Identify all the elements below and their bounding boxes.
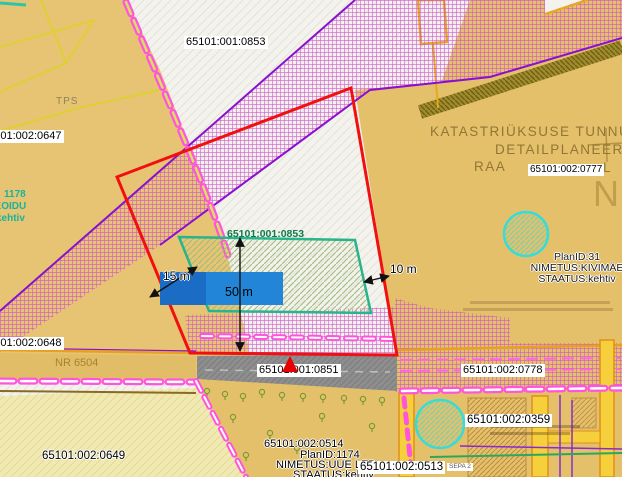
plan-left-name-fragment: KOIDU xyxy=(0,201,26,212)
dimension-50m: 50 m xyxy=(225,286,253,299)
cadastral-map-view[interactable]: 65101:001:0853 65101:002:0647 65101:002:… xyxy=(0,0,622,477)
map-letter-n: N xyxy=(593,188,619,200)
parcel-label-0359: 65101:002:0359 xyxy=(465,414,552,427)
parcel-label-0851: 65101:001:0851 xyxy=(257,364,341,377)
plan-left-id-fragment: 1178 xyxy=(4,189,26,200)
parcel-label-0648: 65101:002:0648 xyxy=(0,337,64,350)
sepa-label: SEPA 2 xyxy=(447,463,473,471)
red-triangle-marker xyxy=(282,356,298,372)
faint-note-line xyxy=(463,308,613,311)
parcel-label-0853: 65101:001:0853 xyxy=(184,36,268,49)
dimension-15m: 15 m xyxy=(163,270,190,283)
parcel-label-0853-green: 65101:001:0853 xyxy=(227,228,304,240)
parcel-label-0649: 65101:002:0649 xyxy=(42,450,125,462)
plan-kivimae-status: STAATUS:kehtiv xyxy=(521,274,622,285)
teal-line xyxy=(0,3,26,5)
heading-katastriuksuse: KATASTRIÜKSUSE TUNNUS xyxy=(430,126,622,138)
faint-note-line xyxy=(470,301,610,304)
tps-label: TPS xyxy=(56,96,78,108)
heading-detailplaneering: DETAILPLANEERING xyxy=(495,144,622,156)
road-number-label: NR 6504 xyxy=(55,357,98,369)
dimension-10m: 10 m xyxy=(390,263,417,276)
map-graphics xyxy=(0,0,622,477)
parcel-label-0778: 65101:002:0778 xyxy=(461,364,545,377)
heading-raagatu-prefix: RAA xyxy=(474,161,506,173)
plan-left-status-fragment: kehtiv xyxy=(0,213,25,224)
parcel-label-0513: 65101:002:0513 xyxy=(358,461,445,474)
parcel-label-0647: 65101:002:0647 xyxy=(0,130,64,143)
